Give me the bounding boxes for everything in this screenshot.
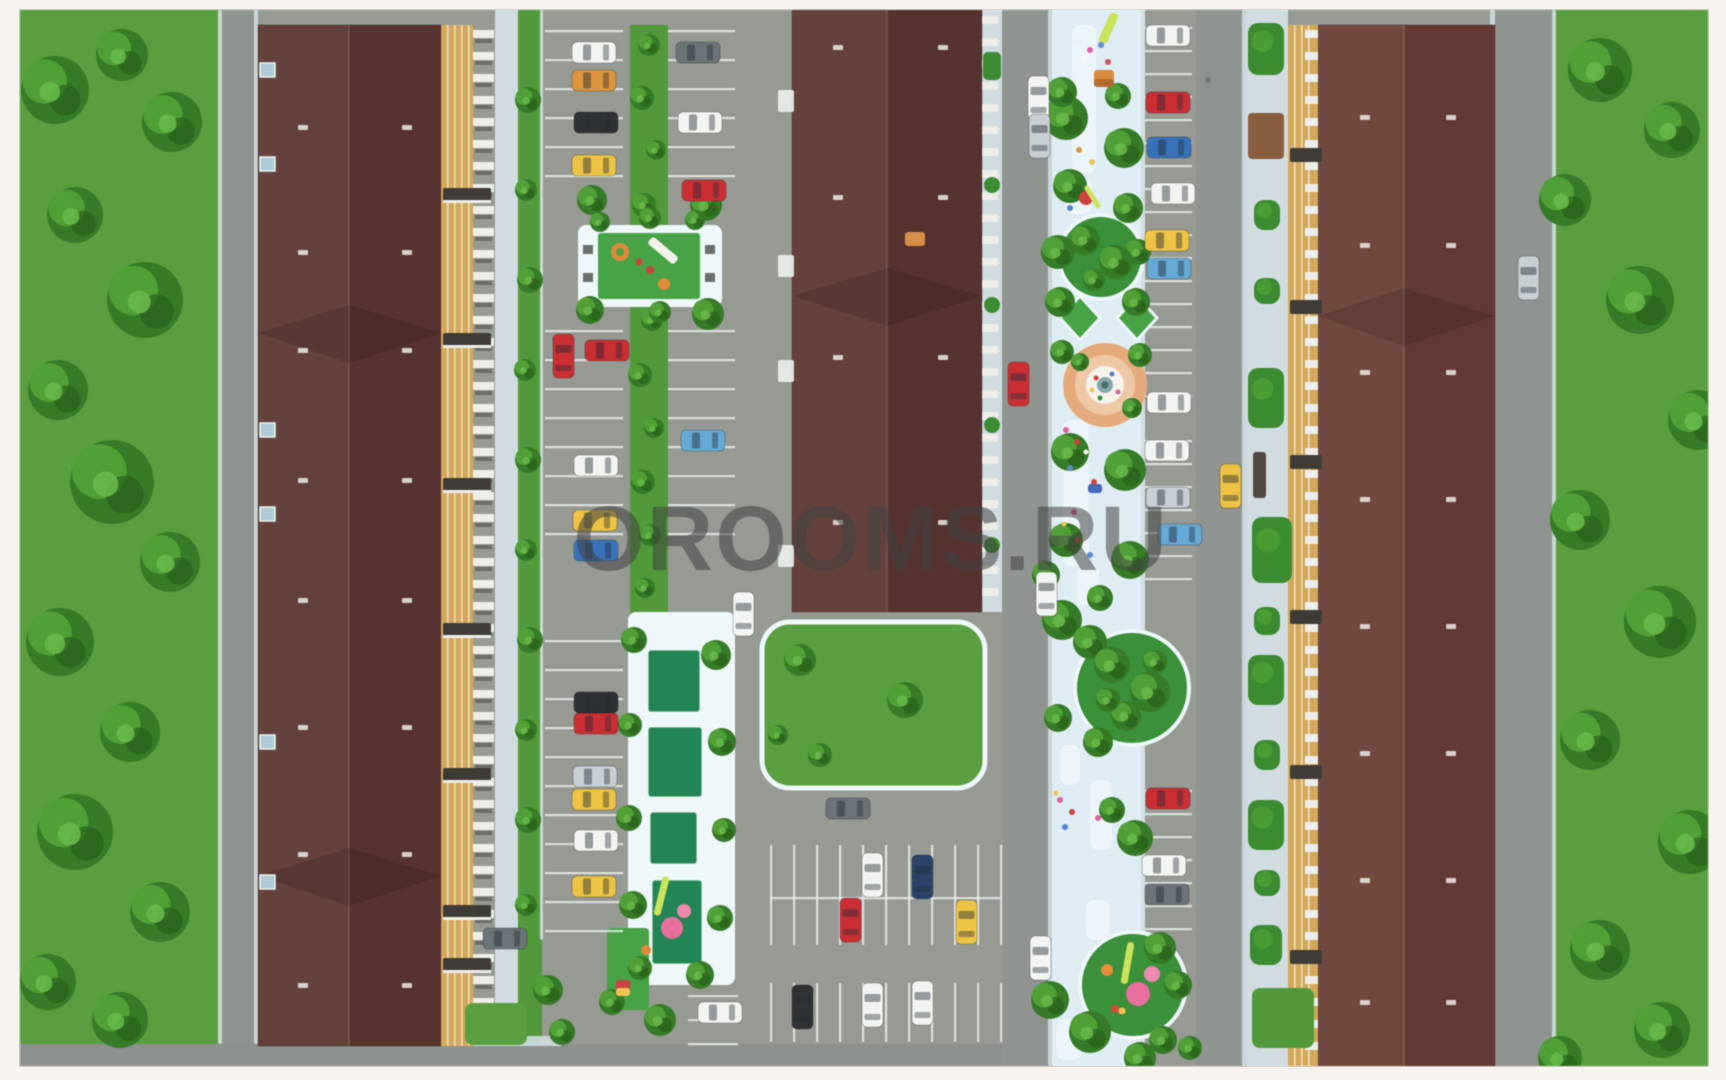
car-glass — [865, 864, 881, 872]
hedge-highlight — [1252, 30, 1274, 52]
tree-cluster — [1089, 277, 1096, 284]
window-band — [475, 325, 492, 329]
car-glass — [1157, 791, 1165, 807]
sport-court — [648, 727, 702, 797]
facade-stripe — [1308, 25, 1310, 1066]
skylight — [260, 875, 275, 889]
skylight — [260, 507, 275, 521]
tree-cluster — [521, 187, 528, 194]
lawn-patch — [1252, 988, 1314, 1048]
car-glass — [1031, 107, 1047, 113]
roof-vent — [833, 195, 843, 200]
small-item — [1084, 450, 1089, 455]
hedge-highlight — [1257, 279, 1273, 295]
car-glass — [585, 716, 593, 732]
tree-cluster — [107, 1013, 124, 1030]
car-glass — [603, 73, 609, 89]
entrance-canopy — [778, 255, 794, 277]
skylight — [260, 735, 275, 749]
balcony — [473, 206, 494, 214]
car — [1220, 464, 1241, 508]
window-band — [475, 721, 492, 725]
small-item — [1082, 56, 1087, 61]
parking-line — [688, 995, 738, 997]
parking-line — [793, 845, 795, 945]
balcony — [473, 52, 494, 60]
car-glass — [1158, 261, 1166, 277]
car-glass — [1521, 287, 1537, 293]
roof-vent — [1360, 1000, 1370, 1005]
car — [678, 112, 722, 133]
car — [676, 42, 720, 63]
tree-cluster — [1172, 982, 1180, 990]
entrance-step — [443, 780, 491, 783]
entrance-step — [443, 200, 491, 203]
car — [574, 830, 618, 851]
balcony — [473, 382, 494, 390]
balcony — [982, 236, 998, 244]
tree-cluster — [1553, 194, 1569, 210]
tree-cluster — [1119, 712, 1128, 721]
tree-cluster — [585, 196, 594, 205]
balcony — [473, 96, 494, 104]
roof-east-slope — [1404, 25, 1495, 1066]
tree-cluster — [1076, 360, 1081, 365]
tree-cluster — [1586, 62, 1605, 81]
parking-line — [816, 845, 818, 945]
balcony — [473, 690, 494, 698]
facade-stripe — [447, 25, 449, 1046]
facade-stripe — [1301, 25, 1303, 1066]
tree-cluster — [1078, 236, 1087, 245]
tree-cluster — [521, 727, 528, 734]
roof-vent — [1446, 751, 1456, 756]
small-item — [1087, 47, 1093, 53]
balcony — [473, 580, 494, 588]
sidewalk-curb — [254, 10, 258, 1044]
balcony — [1305, 404, 1318, 412]
window-band — [475, 435, 492, 439]
car-glass — [494, 931, 502, 947]
car — [698, 1002, 742, 1023]
tree-cluster — [1141, 687, 1153, 699]
car — [912, 855, 933, 899]
parking-line — [977, 983, 979, 1042]
car-glass — [843, 909, 859, 917]
car-glass — [605, 716, 611, 732]
car-glass — [603, 879, 609, 895]
car-glass — [1178, 261, 1184, 277]
car-glass — [837, 801, 845, 817]
car — [733, 592, 754, 636]
small-item — [1205, 77, 1211, 83]
play-equipment — [636, 259, 643, 266]
tree-cluster — [645, 215, 652, 222]
roof-vent — [1446, 370, 1456, 375]
parking-line — [1145, 372, 1192, 374]
roof-vent — [402, 250, 412, 255]
balcony — [982, 478, 998, 486]
parking-line — [770, 897, 1000, 899]
hedge-highlight — [1252, 378, 1274, 400]
tree-cluster — [45, 634, 65, 654]
entrance-canopy — [1290, 765, 1322, 779]
balcony — [1305, 514, 1318, 522]
entrance-step — [443, 917, 491, 920]
balcony — [1305, 492, 1318, 500]
roof-vent — [938, 45, 948, 50]
car-glass — [1177, 28, 1183, 44]
balcony — [982, 126, 998, 134]
tree-cluster — [650, 426, 656, 432]
balcony — [982, 346, 998, 354]
parking-line — [1145, 303, 1192, 305]
car — [574, 112, 618, 133]
car — [1145, 230, 1189, 251]
car-glass — [1031, 87, 1047, 95]
small-item — [1098, 42, 1104, 48]
small-item — [1089, 159, 1095, 165]
roof-vent — [402, 478, 412, 483]
tree-cluster — [1053, 298, 1062, 307]
parking-line — [668, 475, 735, 477]
tree-cluster — [635, 372, 642, 379]
tree-cluster — [596, 220, 602, 226]
car — [572, 789, 616, 810]
balcony — [1305, 822, 1318, 830]
tree-cluster — [159, 115, 177, 133]
small-item — [1094, 376, 1099, 381]
roof-vent — [402, 852, 412, 857]
car-glass — [514, 931, 520, 947]
tree-cluster — [522, 97, 530, 105]
car — [1029, 114, 1050, 158]
parking-line — [668, 330, 735, 332]
tree-cluster — [653, 1016, 663, 1026]
roof-vent — [833, 355, 843, 360]
tree-cluster — [1649, 1023, 1666, 1040]
balcony — [1305, 74, 1318, 82]
car — [574, 692, 618, 713]
tree-cluster — [1577, 733, 1595, 751]
car-glass — [585, 695, 593, 711]
small-item — [1110, 372, 1115, 377]
car-glass — [709, 115, 715, 131]
car-glass — [795, 996, 811, 1004]
tree-cluster — [1587, 943, 1605, 961]
zone — [20, 10, 222, 1066]
parking-line — [908, 983, 910, 1042]
balcony — [1305, 228, 1318, 236]
car-glass — [865, 1014, 881, 1020]
balcony — [982, 324, 998, 332]
parking-line — [545, 901, 623, 903]
parking-line — [954, 983, 956, 1042]
sport-court — [648, 650, 700, 712]
tree-cluster — [45, 383, 63, 401]
parking-line — [668, 417, 735, 419]
parking-line — [688, 1043, 738, 1045]
roof-vent — [298, 725, 308, 730]
play-equipment — [1111, 1005, 1119, 1013]
balcony — [1305, 118, 1318, 126]
balcony — [1305, 778, 1318, 786]
car-glass — [915, 866, 931, 874]
skylight — [260, 63, 275, 77]
entrance-canopy — [1290, 300, 1322, 314]
parking-line — [839, 983, 841, 1042]
small-item — [1202, 69, 1208, 75]
roof-vent — [1360, 243, 1370, 248]
parking-line — [1145, 928, 1192, 930]
balcony — [1305, 250, 1318, 258]
tree-cluster — [93, 472, 118, 497]
window-band — [475, 391, 492, 395]
facade-bush — [984, 297, 1000, 313]
window-band — [475, 149, 492, 153]
balcony — [473, 558, 494, 566]
tree-cluster — [521, 547, 528, 554]
small-item — [1090, 388, 1095, 393]
balcony — [473, 536, 494, 544]
car — [792, 985, 813, 1029]
tree-cluster — [556, 1029, 564, 1037]
car-glass — [1157, 95, 1165, 111]
car-glass — [605, 695, 611, 711]
tree-cluster — [1132, 249, 1140, 257]
balcony — [473, 448, 494, 456]
car — [1147, 137, 1191, 158]
small-item — [1074, 439, 1080, 445]
car-glass — [583, 792, 591, 808]
window-band — [475, 39, 492, 43]
parking-line — [545, 814, 623, 816]
car-glass — [707, 45, 713, 61]
tree-cluster — [625, 722, 632, 729]
car — [1008, 362, 1029, 406]
roof-vent — [402, 598, 412, 603]
tree-cluster — [128, 291, 151, 314]
car-glass — [603, 45, 609, 61]
car — [1028, 76, 1049, 120]
balcony — [473, 602, 494, 610]
play-equipment — [1119, 1008, 1126, 1015]
tree-cluster — [719, 827, 726, 834]
car-glass — [1157, 28, 1165, 44]
car — [1145, 440, 1189, 461]
tree-cluster — [815, 752, 822, 759]
window-band — [475, 259, 492, 263]
zone — [1196, 10, 1250, 1066]
window-band — [475, 589, 492, 593]
roof-vent — [402, 983, 412, 988]
roof-ridge — [1403, 25, 1405, 1066]
balcony — [982, 280, 998, 288]
balcony — [473, 514, 494, 522]
balcony — [1305, 96, 1318, 104]
window-band — [475, 281, 492, 285]
car — [1030, 936, 1051, 980]
car-glass — [1011, 373, 1027, 381]
tree-cluster — [522, 457, 530, 465]
tree-cluster — [1121, 204, 1130, 213]
car-glass — [736, 603, 752, 611]
walk-path — [1086, 900, 1110, 940]
tree-cluster — [1108, 258, 1118, 268]
balcony — [1305, 448, 1318, 456]
parking-line — [545, 446, 623, 448]
tree-cluster — [35, 975, 52, 992]
balcony — [473, 668, 494, 676]
balcony — [1305, 162, 1318, 170]
tree-cluster — [1055, 88, 1064, 97]
balcony — [473, 360, 494, 368]
tree-cluster — [652, 148, 658, 154]
tree-cluster — [638, 479, 645, 486]
car-glass — [857, 801, 863, 817]
playground-bench — [583, 245, 593, 254]
parking-line — [545, 146, 623, 148]
car-glass — [605, 833, 611, 849]
tree-cluster — [1116, 465, 1129, 478]
entrance-canopy — [1290, 148, 1322, 162]
balcony — [982, 434, 998, 442]
tree-cluster — [584, 307, 592, 315]
hedge-highlight — [1257, 871, 1273, 887]
tree-cluster — [40, 82, 60, 102]
window-band — [475, 875, 492, 879]
balcony — [473, 30, 494, 38]
window-band — [475, 127, 492, 131]
tree-cluster — [1050, 248, 1060, 258]
car-glass — [1178, 395, 1184, 411]
entrance-canopy — [778, 360, 794, 382]
car-glass — [596, 343, 604, 359]
balcony — [982, 456, 998, 464]
window-band — [475, 545, 492, 549]
parking-line — [1145, 813, 1192, 815]
roof-vent — [1360, 497, 1370, 502]
balcony — [1305, 976, 1318, 984]
car-glass — [1039, 603, 1055, 609]
tree-cluster — [1128, 406, 1134, 412]
window-band — [475, 501, 492, 505]
small-item — [1105, 59, 1111, 65]
roof-vent — [938, 355, 948, 360]
car — [573, 766, 617, 787]
play-equipment — [616, 988, 630, 996]
car-glass — [1158, 140, 1166, 156]
parking-line — [1145, 463, 1192, 465]
roof-vent — [1360, 115, 1370, 120]
car-glass — [1178, 140, 1184, 156]
car — [862, 853, 883, 897]
car-glass — [915, 886, 931, 892]
car — [681, 430, 725, 451]
parking-line — [668, 146, 735, 148]
walk-path — [1060, 745, 1080, 785]
play-equipment — [1091, 479, 1097, 485]
tree-cluster — [541, 986, 550, 995]
parking-line — [1145, 211, 1192, 213]
balcony — [1305, 800, 1318, 808]
parking-line — [545, 872, 623, 874]
play-equipment — [677, 904, 691, 918]
car-glass — [1153, 858, 1161, 874]
balcony — [473, 294, 494, 302]
tree-cluster — [1062, 182, 1072, 192]
tree-cluster — [644, 42, 651, 49]
tree-cluster — [1130, 299, 1138, 307]
tree-cluster — [639, 202, 646, 209]
car — [1518, 256, 1539, 300]
parking-line — [1145, 326, 1192, 328]
tree-cluster — [699, 201, 709, 211]
tree-cluster — [110, 49, 126, 65]
tree-cluster — [1052, 715, 1060, 723]
car — [682, 180, 726, 201]
balcony — [1305, 602, 1318, 610]
car-glass — [795, 1016, 811, 1022]
entrance-canopy — [778, 90, 794, 112]
car — [572, 155, 616, 176]
entrance-step — [443, 345, 491, 348]
window-band — [475, 985, 492, 989]
balcony — [473, 888, 494, 896]
playground-bench — [705, 273, 715, 282]
tree-cluster — [793, 656, 803, 666]
balcony — [473, 272, 494, 280]
window-band — [475, 743, 492, 747]
tree-cluster — [1081, 1027, 1094, 1040]
parking-line — [885, 845, 887, 945]
facade-stripe — [468, 25, 470, 1046]
car-glass — [709, 1005, 717, 1021]
tree-cluster — [714, 915, 722, 923]
window-band — [475, 303, 492, 307]
window-band — [475, 853, 492, 857]
balcony — [1305, 52, 1318, 60]
balcony — [473, 118, 494, 126]
balcony — [473, 844, 494, 852]
tree-cluster — [157, 555, 175, 573]
car-glass — [689, 115, 697, 131]
entrance-canopy — [1290, 950, 1322, 964]
car-glass — [915, 1012, 931, 1018]
balcony — [473, 712, 494, 720]
car — [574, 713, 618, 734]
balcony — [1305, 140, 1318, 148]
roof-vent — [1360, 370, 1370, 375]
balcony — [1305, 910, 1318, 918]
balcony — [982, 390, 998, 398]
parking-line — [770, 845, 772, 945]
tree-cluster — [1567, 513, 1585, 531]
tree-cluster — [1104, 661, 1115, 672]
balcony — [982, 258, 998, 266]
balcony — [982, 170, 998, 178]
window-band — [475, 831, 492, 835]
car-glass — [603, 158, 609, 174]
play-equipment — [1126, 982, 1150, 1006]
balcony — [473, 404, 494, 412]
balcony — [473, 976, 494, 984]
small-item — [1054, 791, 1059, 796]
roof-vent — [833, 45, 843, 50]
tree-cluster — [1685, 413, 1703, 431]
car-glass — [1176, 443, 1182, 459]
hedge-highlight — [1257, 203, 1273, 219]
